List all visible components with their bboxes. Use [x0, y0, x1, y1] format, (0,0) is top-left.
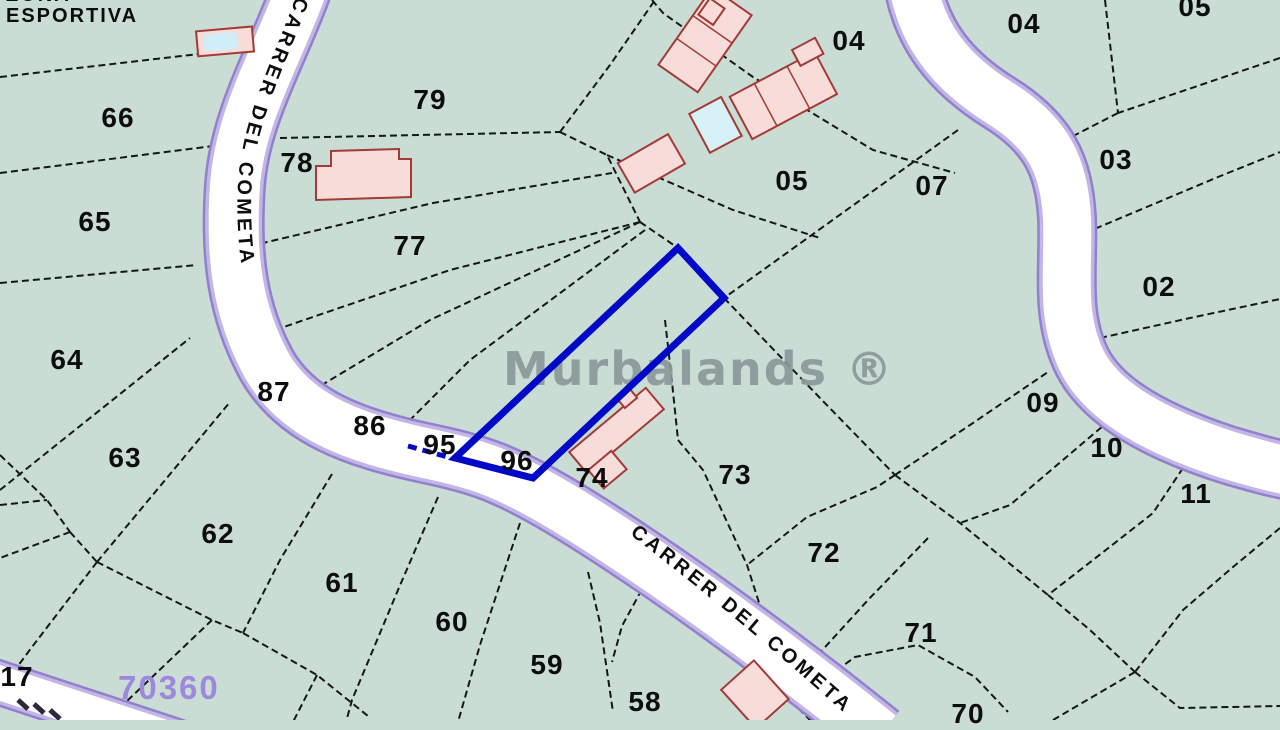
parcel-label-07: 07 [915, 170, 948, 202]
parcel-label-05: 05 [775, 165, 808, 197]
parcel-label-03: 03 [1099, 144, 1132, 176]
parcel-label-95: 95 [423, 429, 456, 461]
parcel-label-73: 73 [718, 459, 751, 491]
parcel-label-09: 09 [1026, 387, 1059, 419]
watermark: Murbalands ® [503, 342, 894, 396]
parcel-label-10: 10 [1090, 432, 1123, 464]
parcel-label-74: 74 [575, 462, 608, 494]
map-graphics: CARRER DEL COMETA CARRER DEL COMETA [0, 0, 1280, 720]
parcel-label-96: 96 [500, 445, 533, 477]
parcel-label-59: 59 [530, 649, 563, 681]
building-pool-zona [196, 27, 254, 57]
parcel-label-78: 78 [280, 147, 313, 179]
building-05 [618, 134, 685, 192]
road-right [913, 0, 1280, 472]
parcel-label-04: 04 [832, 25, 865, 57]
building-04 [724, 38, 843, 139]
parcel-label-60: 60 [435, 606, 468, 638]
parcel-label-70: 70 [951, 698, 984, 730]
parcel-label-66: 66 [101, 102, 134, 134]
parcel-label-71: 71 [904, 617, 937, 649]
building-complex-top [658, 0, 751, 92]
parcel-label-72: 72 [807, 537, 840, 569]
area-code-label: 70360 [118, 669, 220, 707]
parcel-label-17: 17 [0, 661, 33, 693]
parcel-label-77: 77 [393, 230, 426, 262]
parcel-label-58: 58 [628, 686, 661, 718]
parcel-label-11: 11 [1180, 478, 1212, 510]
parcel-label-65: 65 [78, 206, 111, 238]
parcel-label-79: 79 [413, 84, 446, 116]
parcel-label-05: 05 [1178, 0, 1211, 23]
parcel-label-64: 64 [50, 344, 83, 376]
parcel-label-63: 63 [108, 442, 141, 474]
parcel-label-86: 86 [353, 410, 386, 442]
parcel-label-87: 87 [257, 376, 290, 408]
parcel-label-04: 04 [1007, 8, 1040, 40]
parcel-label-61: 61 [325, 567, 358, 599]
parcel-label-62: 62 [201, 518, 234, 550]
zone-label: ZONA ESPORTIVA [6, 0, 138, 27]
building-78 [316, 149, 411, 200]
parcel-label-02: 02 [1142, 271, 1175, 303]
cadastral-map: CARRER DEL COMETA CARRER DEL COMETA [0, 0, 1280, 720]
